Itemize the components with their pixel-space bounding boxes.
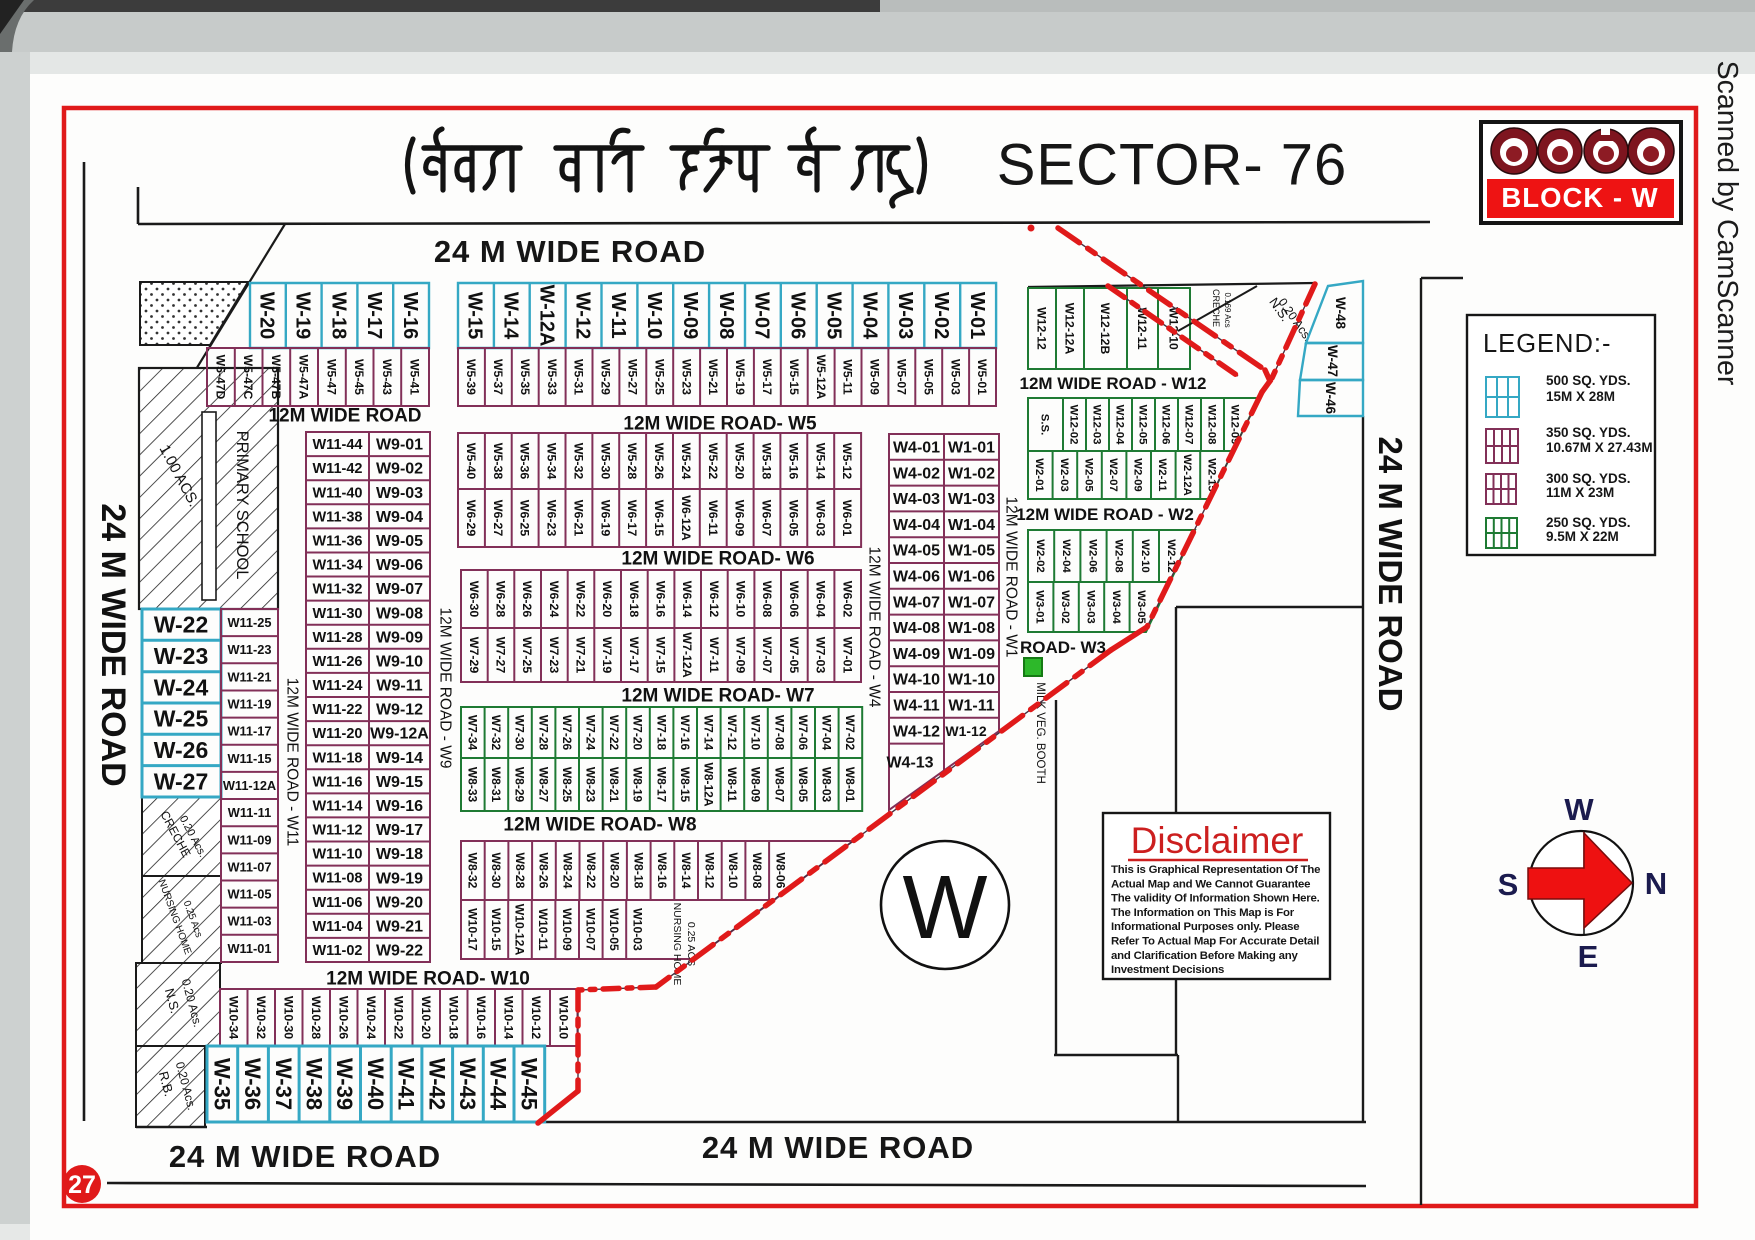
svg-text:W8-30: W8-30 [489, 853, 503, 889]
svg-text:W7-17: W7-17 [627, 637, 641, 674]
svg-text:W5-37: W5-37 [491, 359, 505, 395]
svg-text:W9-15: W9-15 [376, 774, 423, 791]
svg-text:W1-11: W1-11 [948, 698, 994, 715]
svg-text:ROAD- W3: ROAD- W3 [1020, 638, 1106, 657]
svg-text:24 M WIDE ROAD: 24 M WIDE ROAD [434, 234, 706, 269]
svg-text:W7-16: W7-16 [678, 715, 692, 751]
svg-text:W9-01: W9-01 [376, 437, 423, 454]
svg-text:W6-12: W6-12 [707, 581, 721, 618]
svg-text:The Information on This Map is: The Information on This Map is For [1111, 907, 1295, 919]
svg-text:W12-12B: W12-12B [1098, 303, 1112, 355]
svg-text:W11-11: W11-11 [228, 805, 271, 820]
svg-text:W-11: W-11 [607, 292, 629, 338]
svg-text:W11-40: W11-40 [313, 485, 363, 501]
svg-text:W11-44: W11-44 [313, 437, 363, 453]
svg-text:W8-14: W8-14 [679, 853, 693, 889]
svg-text:W6-21: W6-21 [572, 500, 586, 537]
svg-text:E: E [1578, 939, 1599, 974]
svg-text:W8-22: W8-22 [584, 853, 598, 889]
svg-text:W4-12: W4-12 [893, 723, 940, 740]
svg-text:W9-17: W9-17 [376, 822, 423, 839]
svg-text:W9-09: W9-09 [376, 629, 423, 646]
svg-text:W5-45: W5-45 [352, 359, 366, 395]
svg-text:W11-36: W11-36 [313, 534, 363, 550]
svg-text:12M WIDE ROAD - W11: 12M WIDE ROAD - W11 [283, 678, 300, 847]
svg-text:W5-32: W5-32 [572, 443, 586, 480]
svg-text:W1-02: W1-02 [948, 465, 995, 482]
svg-text:27: 27 [68, 1171, 96, 1199]
svg-text:W5-03: W5-03 [948, 359, 962, 395]
svg-text:12M WIDE ROAD - W4: 12M WIDE ROAD - W4 [865, 546, 882, 707]
svg-text:W7-32: W7-32 [489, 715, 503, 751]
svg-text:W2-10: W2-10 [1139, 539, 1151, 573]
svg-text:W5-20: W5-20 [733, 443, 747, 480]
svg-text:W1-04: W1-04 [948, 517, 995, 534]
svg-text:W5-39: W5-39 [464, 359, 478, 395]
svg-text:W11-01: W11-01 [227, 941, 271, 956]
svg-text:W-04: W-04 [858, 292, 880, 340]
svg-text:W7-04: W7-04 [820, 715, 834, 751]
svg-text:W4-11: W4-11 [893, 698, 939, 715]
svg-text:W-18: W-18 [327, 292, 349, 339]
svg-text:W8-29: W8-29 [513, 767, 527, 803]
svg-text:W-23: W-23 [154, 643, 209, 669]
svg-text:W6-04: W6-04 [814, 581, 828, 618]
svg-text:W7-05: W7-05 [787, 637, 801, 674]
svg-text:W11-22: W11-22 [313, 702, 363, 718]
svg-text:LEGEND:-: LEGEND:- [1483, 330, 1611, 358]
svg-text:W-44: W-44 [486, 1058, 511, 1111]
svg-text:W10-26: W10-26 [336, 996, 350, 1039]
svg-text:W10-14: W10-14 [501, 996, 515, 1039]
svg-text:W5-40: W5-40 [464, 443, 478, 480]
svg-text:W6-20: W6-20 [600, 581, 614, 618]
svg-text:W9-06: W9-06 [376, 557, 423, 574]
svg-text:W6-01: W6-01 [840, 500, 854, 537]
svg-text:W-03: W-03 [894, 292, 916, 339]
svg-text:W9-12: W9-12 [376, 702, 423, 719]
svg-text:This is Graphical Representati: This is Graphical Representation Of The [1111, 864, 1320, 876]
svg-text:W-26: W-26 [154, 737, 209, 763]
svg-text:W-48: W-48 [1333, 297, 1348, 329]
svg-text:W5-16: W5-16 [786, 443, 800, 480]
svg-text:W6-06: W6-06 [787, 581, 801, 618]
svg-text:W3-04: W3-04 [1110, 590, 1122, 624]
svg-text:W4-10: W4-10 [893, 672, 940, 689]
svg-text:12M WIDE ROAD - W2: 12M WIDE ROAD - W2 [1016, 505, 1194, 524]
svg-text:W11-18: W11-18 [313, 750, 363, 766]
svg-text:W5-33: W5-33 [545, 359, 559, 395]
svg-text:W8-31: W8-31 [489, 767, 503, 803]
svg-text:W5-29: W5-29 [599, 359, 613, 395]
svg-text:W6-26: W6-26 [520, 581, 534, 618]
svg-text:W8-01: W8-01 [843, 767, 857, 803]
svg-text:W11-06: W11-06 [313, 895, 363, 911]
svg-text:W9-14: W9-14 [376, 750, 423, 767]
svg-text:W11-04: W11-04 [313, 919, 363, 935]
svg-text:11M X 23M: 11M X 23M [1546, 485, 1614, 500]
svg-text:W8-16: W8-16 [655, 853, 669, 889]
svg-text:W10-09: W10-09 [560, 908, 574, 951]
svg-text:W9-02: W9-02 [376, 461, 423, 478]
svg-text:W5-43: W5-43 [380, 359, 394, 395]
svg-text:W1-10: W1-10 [948, 672, 995, 689]
svg-text:W5-05: W5-05 [921, 359, 935, 395]
svg-text:W-27: W-27 [154, 768, 209, 794]
svg-text:and Clarification Before Makin: and Clarification Before Making any [1111, 950, 1299, 962]
svg-text:W11-08: W11-08 [313, 871, 363, 887]
svg-text:W-20: W-20 [256, 292, 278, 339]
svg-text:W6-12A: W6-12A [679, 495, 693, 540]
svg-text:W12-03: W12-03 [1090, 405, 1102, 445]
svg-text:W5-27: W5-27 [626, 359, 640, 395]
svg-text:W7-12: W7-12 [725, 715, 739, 751]
svg-text:W10-28: W10-28 [309, 996, 323, 1039]
svg-text:W7-27: W7-27 [494, 637, 508, 674]
svg-text:W6-08: W6-08 [760, 581, 774, 618]
svg-text:W5-19: W5-19 [733, 359, 747, 395]
svg-text:W10-16: W10-16 [474, 996, 488, 1039]
svg-text:W7-15: W7-15 [654, 637, 668, 674]
svg-text:W1-06: W1-06 [948, 569, 995, 586]
svg-text:Scanned by CamScanner: Scanned by CamScanner [1711, 61, 1743, 386]
svg-text:W5-11: W5-11 [841, 359, 855, 394]
svg-text:W7-23: W7-23 [547, 637, 561, 674]
svg-text:W8-26: W8-26 [537, 853, 551, 889]
svg-text:W11-05: W11-05 [227, 887, 271, 902]
svg-text:W5-25: W5-25 [652, 359, 666, 395]
svg-text:W8-09: W8-09 [749, 767, 763, 803]
svg-text:W6-02: W6-02 [840, 581, 854, 618]
svg-text:W6-28: W6-28 [494, 581, 508, 618]
svg-text:W9-22: W9-22 [376, 943, 423, 960]
svg-text:W4-09: W4-09 [893, 646, 940, 663]
svg-text:W7-06: W7-06 [796, 715, 810, 751]
svg-text:W8-24: W8-24 [560, 853, 574, 889]
svg-text:W12-12A: W12-12A [1063, 303, 1077, 355]
svg-text:W8-21: W8-21 [607, 767, 621, 803]
svg-text:W6-27: W6-27 [491, 500, 505, 537]
svg-text:W: W [1564, 792, 1594, 827]
svg-text:W7-14: W7-14 [702, 715, 716, 751]
svg-text:W6-05: W6-05 [786, 500, 800, 537]
svg-text:W11-25: W11-25 [227, 615, 271, 630]
svg-text:W11-03: W11-03 [227, 914, 271, 929]
svg-text:W4-02: W4-02 [893, 465, 940, 482]
svg-text:W5-41: W5-41 [408, 359, 422, 395]
svg-text:W6-18: W6-18 [627, 581, 641, 618]
svg-text:W11-02: W11-02 [313, 943, 363, 959]
svg-text:W8-27: W8-27 [536, 767, 550, 803]
svg-text:W9-19: W9-19 [376, 870, 423, 887]
svg-text:W5-23: W5-23 [679, 359, 693, 395]
svg-text:W9-11: W9-11 [376, 678, 422, 695]
svg-text:12M WIDE ROAD- W8: 12M WIDE ROAD- W8 [503, 815, 696, 836]
svg-text:W3-02: W3-02 [1059, 590, 1071, 624]
svg-text:W1-07: W1-07 [948, 594, 995, 611]
svg-text:W5-09: W5-09 [868, 359, 882, 395]
svg-text:W6-16: W6-16 [654, 581, 668, 618]
svg-text:W6-17: W6-17 [625, 500, 639, 537]
svg-text:W7-03: W7-03 [814, 637, 828, 674]
svg-text:W6-03: W6-03 [813, 500, 827, 537]
svg-text:W7-29: W7-29 [467, 637, 481, 674]
svg-text:12M WIDE ROAD- W6: 12M WIDE ROAD- W6 [621, 549, 814, 570]
svg-text:W2-04: W2-04 [1060, 539, 1072, 573]
svg-text:W10-15: W10-15 [489, 908, 503, 951]
svg-text:W-25: W-25 [154, 706, 209, 732]
svg-text:W11-17: W11-17 [227, 724, 271, 739]
svg-text:W8-20: W8-20 [608, 853, 622, 889]
svg-text:W2-07: W2-07 [1107, 458, 1119, 492]
svg-text:W8-12: W8-12 [703, 853, 717, 889]
svg-text:12M WIDE ROAD- W5: 12M WIDE ROAD- W5 [623, 414, 817, 435]
svg-text:W2-01: W2-01 [1033, 458, 1045, 492]
svg-text:W3-03: W3-03 [1084, 590, 1096, 624]
svg-text:W12-02: W12-02 [1067, 405, 1079, 445]
svg-text:W2-03: W2-03 [1058, 458, 1070, 492]
svg-text:W7-30: W7-30 [513, 715, 527, 751]
svg-text:S: S [1498, 867, 1519, 902]
svg-text:0.169 Acs: 0.169 Acs [1223, 292, 1232, 327]
svg-text:W12-07: W12-07 [1182, 405, 1194, 445]
svg-text:W11-32: W11-32 [313, 582, 363, 598]
svg-text:Informational Purposes only. P: Informational Purposes only. Please [1111, 921, 1299, 933]
svg-text:W7-11: W7-11 [707, 637, 721, 673]
svg-text:W12-06: W12-06 [1159, 405, 1171, 445]
svg-text:W5-47B: W5-47B [269, 355, 283, 400]
svg-text:S.S.: S.S. [1038, 414, 1050, 436]
svg-text:W-24: W-24 [154, 674, 209, 700]
svg-text:W8-25: W8-25 [560, 767, 574, 803]
svg-text:W10-12A: W10-12A [513, 904, 527, 956]
svg-text:W8-08: W8-08 [750, 853, 764, 889]
svg-text:W11-16: W11-16 [313, 774, 363, 790]
svg-text:W12-04: W12-04 [1113, 405, 1125, 446]
svg-text:W5-30: W5-30 [598, 443, 612, 480]
svg-text:W10-11: W10-11 [536, 908, 550, 950]
svg-text:W7-10: W7-10 [749, 715, 763, 751]
svg-text:W9-21: W9-21 [376, 918, 423, 935]
svg-text:W11-12A: W11-12A [223, 778, 276, 793]
svg-text:12M WIDE ROAD: 12M WIDE ROAD [268, 406, 421, 427]
svg-text:W-07: W-07 [751, 292, 773, 339]
svg-text:W12-12: W12-12 [1035, 307, 1049, 350]
svg-text:W1-12: W1-12 [945, 723, 986, 739]
svg-text:W6-10: W6-10 [734, 581, 748, 618]
svg-text:W8-33: W8-33 [466, 767, 480, 803]
svg-text:12M WIDE ROAD- W7: 12M WIDE ROAD- W7 [621, 686, 814, 707]
svg-text:W9-18: W9-18 [376, 846, 423, 863]
svg-text:W10-30: W10-30 [281, 996, 295, 1039]
svg-text:W11-20: W11-20 [313, 726, 363, 742]
svg-text:W4-05: W4-05 [893, 543, 940, 560]
svg-text:W1-09: W1-09 [948, 646, 995, 663]
svg-text:W2-12A: W2-12A [1181, 454, 1193, 496]
svg-text:W7-20: W7-20 [631, 715, 645, 751]
svg-text:W-37: W-37 [271, 1058, 296, 1110]
svg-text:W7-09: W7-09 [734, 637, 748, 674]
svg-text:300 SQ. YDS.: 300 SQ. YDS. [1546, 471, 1631, 486]
svg-text:W-19: W-19 [292, 292, 314, 339]
svg-text:W-02: W-02 [930, 292, 952, 339]
svg-text:W-08: W-08 [715, 292, 737, 339]
svg-text:W10-20: W10-20 [419, 996, 433, 1039]
svg-text:W2-08: W2-08 [1113, 539, 1125, 573]
svg-text:W7-25: W7-25 [520, 637, 534, 674]
svg-text:W-39: W-39 [332, 1058, 357, 1110]
svg-text:Disclaimer: Disclaimer [1131, 820, 1304, 861]
svg-text:24 M WIDE ROAD: 24 M WIDE ROAD [169, 1139, 441, 1174]
svg-text:W10-12: W10-12 [529, 996, 543, 1039]
svg-text:W7-07: W7-07 [760, 637, 774, 674]
svg-text:W-17: W-17 [363, 292, 385, 339]
svg-text:W10-05: W10-05 [607, 908, 621, 951]
svg-text:W5-26: W5-26 [652, 443, 666, 480]
svg-text:W1-05: W1-05 [948, 543, 995, 560]
svg-text:W7-26: W7-26 [560, 715, 574, 751]
svg-text:W5-22: W5-22 [706, 443, 720, 480]
svg-text:W6-19: W6-19 [598, 500, 612, 537]
svg-text:W-10: W-10 [643, 292, 665, 339]
svg-text:W5-24: W5-24 [679, 443, 693, 480]
svg-text:W11-42: W11-42 [313, 461, 363, 477]
svg-text:W-43: W-43 [455, 1058, 480, 1110]
svg-text:W5-47A: W5-47A [297, 355, 311, 400]
svg-text:W5-15: W5-15 [787, 359, 801, 395]
svg-text:W6-15: W6-15 [652, 500, 666, 537]
svg-text:W7-08: W7-08 [772, 715, 786, 751]
svg-text:The validity Of Information Sh: The validity Of Information Shown Here. [1111, 893, 1320, 905]
svg-text:W11-21: W11-21 [227, 669, 271, 684]
svg-text:W11-09: W11-09 [227, 832, 271, 847]
svg-text:W8-10: W8-10 [726, 853, 740, 889]
svg-text:W5-21: W5-21 [706, 359, 720, 395]
svg-text:W9-20: W9-20 [376, 894, 423, 911]
svg-text:W-01: W-01 [966, 292, 988, 339]
svg-text:W5-17: W5-17 [760, 359, 774, 395]
svg-text:W9-10: W9-10 [376, 654, 423, 671]
svg-text:W-38: W-38 [302, 1058, 327, 1110]
svg-text:W4-06: W4-06 [893, 569, 940, 586]
svg-text:SECTOR- 76: SECTOR- 76 [997, 132, 1348, 197]
svg-text:W5-36: W5-36 [518, 443, 532, 480]
svg-text:W10-18: W10-18 [446, 996, 460, 1039]
svg-text:12M WIDE ROAD - W9: 12M WIDE ROAD - W9 [436, 607, 453, 768]
svg-text:24 M WIDE ROAD: 24 M WIDE ROAD [94, 503, 132, 786]
svg-text:W11-28: W11-28 [313, 630, 363, 646]
svg-text:W3-01: W3-01 [1034, 590, 1046, 624]
svg-text:W3-05: W3-05 [1135, 590, 1147, 624]
svg-text:W9-12A: W9-12A [370, 726, 429, 743]
svg-text:W-35: W-35 [209, 1058, 234, 1110]
svg-text:W11-26: W11-26 [313, 654, 363, 670]
svg-text:W-45: W-45 [516, 1058, 541, 1110]
svg-text:W5-14: W5-14 [813, 443, 827, 480]
svg-text:BLOCK - W: BLOCK - W [1501, 182, 1658, 213]
svg-text:W2-05: W2-05 [1082, 458, 1094, 492]
svg-text:W12-08: W12-08 [1205, 405, 1217, 445]
svg-text:W7-12A: W7-12A [680, 632, 694, 677]
svg-text:W5-47D: W5-47D [214, 355, 228, 400]
svg-text:W-22: W-22 [154, 612, 209, 638]
svg-text:W7-22: W7-22 [607, 715, 621, 751]
svg-text:W11-23: W11-23 [227, 642, 271, 657]
svg-text:W5-38: W5-38 [491, 443, 505, 480]
svg-text:W-05: W-05 [822, 292, 844, 339]
svg-text:W6-11: W6-11 [706, 500, 720, 536]
svg-text:W9-07: W9-07 [376, 581, 423, 598]
svg-text:Investment Decisions: Investment Decisions [1111, 964, 1224, 976]
svg-text:W-15: W-15 [464, 292, 486, 339]
svg-text:W11-12: W11-12 [313, 823, 363, 839]
svg-text:W1-08: W1-08 [948, 620, 995, 637]
svg-text:W9-03: W9-03 [376, 485, 423, 502]
svg-text:W11-15: W11-15 [227, 751, 271, 766]
svg-text:W11-24: W11-24 [313, 678, 363, 694]
svg-text:W10-07: W10-07 [583, 908, 597, 951]
svg-text:W11-14: W11-14 [313, 799, 363, 815]
svg-text:500 SQ. YDS.: 500 SQ. YDS. [1546, 373, 1631, 388]
svg-text:W6-30: W6-30 [467, 581, 481, 618]
svg-text:W6-09: W6-09 [733, 500, 747, 537]
svg-text:W10-34: W10-34 [226, 996, 240, 1039]
svg-text:W8-18: W8-18 [631, 853, 645, 889]
svg-text:W7-01: W7-01 [840, 637, 854, 674]
svg-text:W4-13: W4-13 [886, 755, 933, 772]
svg-text:W9-16: W9-16 [376, 798, 423, 815]
svg-text:W12-05: W12-05 [1136, 405, 1148, 446]
svg-text:W5-12: W5-12 [840, 443, 854, 480]
svg-text:W5-47: W5-47 [325, 359, 339, 395]
svg-text:W5-01: W5-01 [975, 359, 989, 395]
svg-text:15M X 28M: 15M X 28M [1546, 389, 1615, 404]
svg-text:W7-34: W7-34 [466, 715, 480, 751]
svg-text:W-12A: W-12A [536, 285, 558, 347]
svg-text:W8-03: W8-03 [820, 767, 834, 803]
svg-text:W5-28: W5-28 [625, 443, 639, 480]
svg-text:W5-07: W5-07 [895, 359, 909, 395]
svg-text:W6-23: W6-23 [545, 500, 559, 537]
svg-text:W5-31: W5-31 [572, 359, 586, 395]
svg-text:W10-03: W10-03 [631, 908, 645, 951]
svg-text:W-09: W-09 [679, 292, 701, 339]
svg-text:W2-09: W2-09 [1132, 458, 1144, 492]
svg-text:W-36: W-36 [240, 1058, 265, 1110]
svg-text:W9-05: W9-05 [376, 533, 423, 550]
svg-text:W1-03: W1-03 [948, 491, 995, 508]
svg-text:10.67M X 27.43M: 10.67M X 27.43M [1546, 440, 1653, 455]
svg-text:24 M WIDE ROAD: 24 M WIDE ROAD [702, 1130, 974, 1165]
svg-text:W-16: W-16 [399, 292, 421, 339]
svg-text:W8-23: W8-23 [584, 767, 598, 803]
svg-text:12M WIDE ROAD- W10: 12M WIDE ROAD- W10 [326, 969, 530, 990]
svg-text:250 SQ. YDS.: 250 SQ. YDS. [1546, 515, 1631, 530]
svg-text:W-47: W-47 [1325, 345, 1340, 377]
svg-text:W4-07: W4-07 [893, 594, 940, 611]
svg-text:W4-08: W4-08 [893, 620, 940, 637]
svg-text:W4-01: W4-01 [893, 440, 940, 457]
svg-text:W10-24: W10-24 [364, 996, 378, 1039]
svg-text:Refer To Actual Map For Accura: Refer To Actual Map For Accurate Detail [1111, 936, 1319, 948]
svg-text:W6-22: W6-22 [574, 581, 588, 618]
svg-text:W6-14: W6-14 [680, 581, 694, 618]
svg-text:W11-10: W11-10 [313, 847, 363, 863]
svg-text:W2-02: W2-02 [1034, 539, 1046, 573]
svg-text:9.5M X 22M: 9.5M X 22M [1546, 529, 1619, 544]
svg-text:W-14: W-14 [500, 292, 522, 340]
svg-text:W9-08: W9-08 [376, 605, 423, 622]
